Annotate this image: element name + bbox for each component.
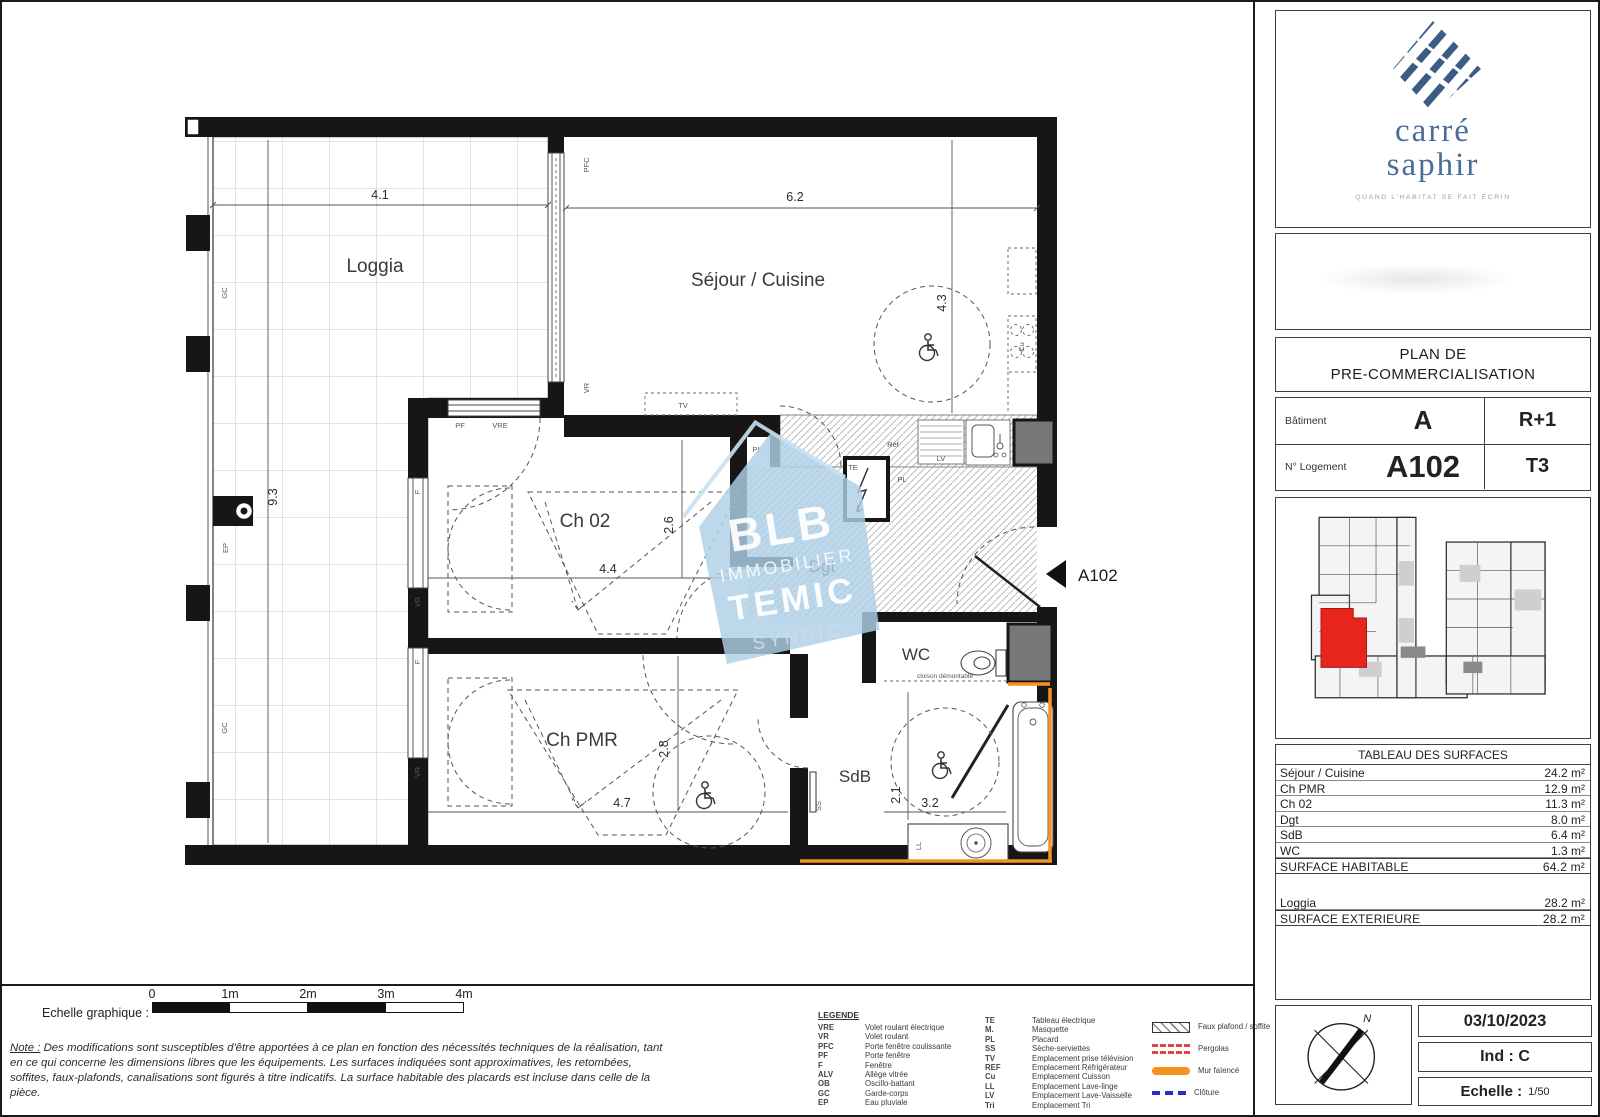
surface-label: Ch 02: [1280, 797, 1312, 811]
label-vr: VR: [413, 766, 422, 777]
label-pf: PF: [455, 421, 465, 430]
legend-title: LEGENDE: [818, 1010, 859, 1020]
surface-row: WC1.3 m²: [1276, 843, 1590, 859]
surface-row: Ch PMR12.9 m²: [1276, 781, 1590, 797]
surface-habitable-row: SURFACE HABITABLE64.2 m²: [1276, 858, 1590, 874]
dim-loggia-w: 4.1: [371, 188, 388, 202]
label-ll: LL: [914, 842, 923, 850]
note-body: Des modifications sont susceptibles d'êt…: [10, 1042, 662, 1099]
scalebar-tick-1: 1m: [221, 987, 238, 1001]
wheelchair-icon: [697, 782, 716, 809]
plan-sheet: Loggia Séjour / Cuisine Ch 02 Dgt WC Ch …: [0, 0, 1600, 1117]
door-arc-loggia: [448, 418, 540, 510]
turning-circle-sdb: [891, 708, 999, 816]
label-ref: Réf: [887, 440, 900, 449]
surface-value: 6.4 m²: [1551, 828, 1585, 842]
turning-circle-sejour: [874, 286, 990, 402]
legend-label: Tableau électrique: [1032, 1016, 1095, 1025]
floor-plan-drawing: Loggia Séjour / Cuisine Ch 02 Dgt WC Ch …: [0, 0, 1253, 984]
label-gc: GC: [220, 722, 229, 734]
label-te: TE: [848, 463, 858, 472]
bathtub-icon: [1013, 702, 1053, 852]
room-label-chpmr: Ch PMR: [546, 730, 618, 751]
sidebar-divider: [1253, 0, 1255, 1117]
index-box: Ind : C: [1418, 1042, 1592, 1072]
wardrobe-ch02: [448, 486, 512, 612]
surface-loggia-row: Loggia28.2 m²: [1276, 895, 1590, 911]
legend-label: Fenêtre: [865, 1061, 892, 1070]
scale-label: Echelle :: [1460, 1083, 1522, 1100]
legend-label: Eau pluviale: [865, 1098, 907, 1107]
scalebar-label: Echelle graphique :: [42, 1006, 149, 1020]
legend-label: Faux plafond / soffite: [1198, 1023, 1270, 1031]
legend-label: Emplacement Lave-linge: [1032, 1082, 1118, 1091]
legend-column-1: VREVolet roulant électrique VRVolet roul…: [818, 1023, 988, 1108]
surface-row: Dgt8.0 m²: [1276, 812, 1590, 828]
label-vr: VR: [413, 596, 422, 607]
legend-label: Sèche-serviettes: [1032, 1044, 1090, 1053]
index-value: Ind : C: [1480, 1048, 1530, 1066]
room-label-sejour: Séjour / Cuisine: [691, 270, 825, 291]
pergolas-symbol: [1152, 1044, 1190, 1054]
carre-saphir-diamond-icon: [1363, 19, 1503, 115]
legend-label: Emplacement Cuisson: [1032, 1072, 1110, 1081]
loggia-tiles: [208, 137, 548, 845]
legend-label: Clôture: [1194, 1089, 1219, 1097]
surface-value: 28.2 m²: [1543, 912, 1585, 925]
niveau-value: R+1: [1484, 398, 1590, 444]
keyplan-box: [1275, 497, 1591, 739]
surface-value: 1.3 m²: [1551, 844, 1585, 858]
faux-plafond-symbol: [1152, 1022, 1190, 1033]
surface-value: 8.0 m²: [1551, 813, 1585, 827]
note-label: Note :: [10, 1042, 40, 1054]
dim-sejour-h: 4.3: [935, 294, 949, 311]
wall-end-cap: [187, 119, 199, 135]
surface-value: 24.2 m²: [1544, 766, 1585, 780]
north-label: N: [1363, 1013, 1371, 1025]
label-vr: VR: [582, 382, 591, 393]
room-label-loggia: Loggia: [346, 256, 403, 277]
legend-abbr: Tri: [985, 1101, 1032, 1110]
surface-label: WC: [1280, 844, 1300, 858]
surface-exterieure-row: SURFACE EXTERIEURE28.2 m²: [1276, 910, 1590, 926]
scalebar-tick-2: 2m: [299, 987, 316, 1001]
legend-abbr: REF: [985, 1063, 1032, 1072]
legend-abbr: PL: [985, 1035, 1032, 1044]
mur-faience-symbol: [1152, 1067, 1190, 1075]
surface-label: SURFACE EXTERIEURE: [1280, 912, 1420, 925]
legend-label: Oscillo-battant: [865, 1079, 915, 1088]
legend-abbr: F: [818, 1061, 865, 1070]
legend-label: Garde-corps: [865, 1089, 908, 1098]
stamp-box: [1275, 233, 1591, 330]
legend-abbr: VR: [818, 1032, 865, 1041]
label-vre: VRE: [492, 421, 507, 430]
legend-label: Porte fenêtre coulissante: [865, 1042, 951, 1051]
logo-box: carré saphir QUAND L'HABITAT SE FAIT ÉCR…: [1275, 10, 1591, 228]
label-lv: LV: [937, 454, 946, 463]
surface-value: 64.2 m²: [1543, 860, 1585, 873]
dim-chpmr-h: 2.8: [657, 740, 671, 757]
unit-info-table: Bâtiment A R+1 N° Logement A102 T3: [1275, 397, 1591, 491]
north-compass-icon: N: [1282, 1009, 1406, 1101]
legend-abbr: LV: [985, 1091, 1032, 1100]
room-label-sdb: SdB: [839, 767, 871, 786]
legend-abbr: EP: [818, 1098, 865, 1107]
keyplan-drawing: [1283, 504, 1583, 732]
label-f: F: [413, 489, 422, 494]
surface-value: 28.2 m²: [1544, 896, 1585, 910]
dim-chpmr-w: 4.7: [613, 796, 630, 810]
scale-box: Echelle : 1/50: [1418, 1077, 1592, 1106]
dim-left-h: 9.3: [266, 488, 280, 505]
door-arc-chpmr: [643, 654, 733, 744]
legend-ab br: OB: [818, 1079, 865, 1088]
batiment-label: Bâtiment: [1276, 398, 1362, 444]
type-value: T3: [1484, 445, 1590, 490]
faint-mark: [1316, 264, 1516, 294]
legend-label: Emplacement Tri: [1032, 1101, 1091, 1110]
logement-label: N° Logement: [1276, 445, 1362, 490]
surface-label: SdB: [1280, 828, 1303, 842]
legend-abbr: LL: [985, 1082, 1032, 1091]
dim-ch02-h: 2.6: [662, 516, 676, 533]
legend-abbr: ALV: [818, 1070, 865, 1079]
title-block: PLAN DE PRE-COMMERCIALISATION: [1275, 337, 1591, 392]
legend-label: Allège vitrée: [865, 1070, 908, 1079]
entrance-unit-label: A102: [1078, 566, 1118, 585]
date-value: 03/10/2023: [1464, 1012, 1547, 1031]
scalebar-tick-0: 0: [149, 987, 156, 1001]
wheelchair-icon: [933, 752, 952, 779]
legend-abbr: TV: [985, 1054, 1032, 1063]
legend-label: Volet roulant électrique: [865, 1023, 944, 1032]
legend-label: Emplacement Lave-Vaisselle: [1032, 1091, 1132, 1100]
label-pfc: PFC: [582, 157, 591, 173]
legend-abbr: M.: [985, 1025, 1032, 1034]
legend-label: Emplacement Réfrigérateur: [1032, 1063, 1127, 1072]
label-cu: Cu: [1017, 342, 1026, 352]
legend-label: Porte fenêtre: [865, 1051, 910, 1060]
label-cloison-demontable: cloison démontable: [917, 673, 973, 680]
title-line1: PLAN DE: [1400, 345, 1467, 365]
legend-label: Placard: [1032, 1035, 1058, 1044]
room-label-ch02: Ch 02: [560, 511, 611, 532]
wheelchair-icon: [920, 334, 939, 361]
legend-abbr: PFC: [818, 1042, 865, 1051]
legend-abbr: Cu: [985, 1072, 1032, 1081]
ep-downspout: [213, 496, 253, 526]
legend-label: Masquette: [1032, 1025, 1068, 1034]
label-tv: TV: [678, 401, 688, 410]
surfaces-table: TABLEAU DES SURFACES Séjour / Cuisine24.…: [1275, 744, 1591, 1000]
legend-abbr: GC: [818, 1089, 865, 1098]
surface-value: 12.9 m²: [1544, 782, 1585, 796]
label-gc: GC: [220, 287, 229, 299]
dim-sejour-w: 6.2: [786, 190, 803, 204]
surface-value: 11.3 m²: [1545, 797, 1585, 811]
wardrobe-chpmr: [448, 678, 512, 806]
bed-chpmr: [508, 690, 738, 835]
surfaces-title: TABLEAU DES SURFACES: [1276, 745, 1590, 765]
batiment-value: A: [1362, 398, 1484, 444]
tv-outlet-zone: [645, 393, 737, 415]
legend-column-2: TETableau électrique M.Masquette PLPlaca…: [985, 1016, 1155, 1110]
scalebar-tick-3: 3m: [377, 987, 394, 1001]
date-box: 03/10/2023: [1418, 1005, 1592, 1037]
brand-name: carré saphir: [1387, 115, 1480, 182]
label-ss: SS: [814, 801, 823, 811]
compass-box: N: [1275, 1005, 1412, 1105]
scale-value: 1/50: [1528, 1086, 1549, 1098]
logement-value: A102: [1362, 445, 1484, 490]
legend-label: Pergolas: [1198, 1045, 1229, 1053]
title-line2: PRE-COMMERCIALISATION: [1331, 365, 1536, 385]
surface-label: Loggia: [1280, 896, 1316, 910]
info-row-logement: N° Logement A102 T3: [1276, 444, 1590, 490]
legend-abbr: TE: [985, 1016, 1032, 1025]
label-f: F: [413, 659, 422, 664]
toilet-icon: [974, 657, 990, 669]
plan-bottom-divider: [0, 984, 1253, 986]
dim-ch02-w: 4.4: [599, 562, 616, 576]
graphic-scale-bar: [152, 1002, 464, 1013]
surface-label: Ch PMR: [1280, 782, 1325, 796]
legend-label: Volet roulant: [865, 1032, 908, 1041]
room-label-wc: WC: [902, 645, 930, 664]
surface-row: Séjour / Cuisine24.2 m²: [1276, 765, 1590, 781]
info-row-batiment: Bâtiment A R+1: [1276, 398, 1590, 444]
legend-column-symbols: Faux plafond / soffite Pergolas Mur faïe…: [1152, 1016, 1292, 1104]
surface-label: Dgt: [1280, 813, 1299, 827]
cloture-symbol: [1152, 1091, 1186, 1095]
label-pl: PL: [897, 475, 906, 484]
scalebar-tick-4: 4m: [455, 987, 472, 1001]
label-ep: EP: [221, 543, 230, 553]
grab-bar: [952, 705, 1008, 798]
surface-label: SURFACE HABITABLE: [1280, 860, 1409, 873]
surface-row: Ch 0211.3 m²: [1276, 796, 1590, 812]
legend-abbr: VRE: [818, 1023, 865, 1032]
brand-line1: carré: [1387, 115, 1480, 149]
surface-label: Séjour / Cuisine: [1280, 766, 1365, 780]
dim-sdb-w: 3.2: [921, 796, 938, 810]
note-text: Note : Des modifications sont susceptibl…: [10, 1041, 665, 1102]
legend-abbr: SS: [985, 1044, 1032, 1053]
surfaces-gap: [1276, 874, 1590, 895]
surface-row: SdB6.4 m²: [1276, 827, 1590, 843]
legend-label: Mur faïencé: [1198, 1067, 1239, 1075]
legend-label: Emplacement prise télévision: [1032, 1054, 1133, 1063]
brand-tagline: QUAND L'HABITAT SE FAIT ÉCRIN: [1355, 194, 1511, 201]
dim-sdb-h: 2.1: [889, 786, 903, 803]
legend-abbr: PF: [818, 1051, 865, 1060]
brand-line2: saphir: [1387, 149, 1480, 183]
